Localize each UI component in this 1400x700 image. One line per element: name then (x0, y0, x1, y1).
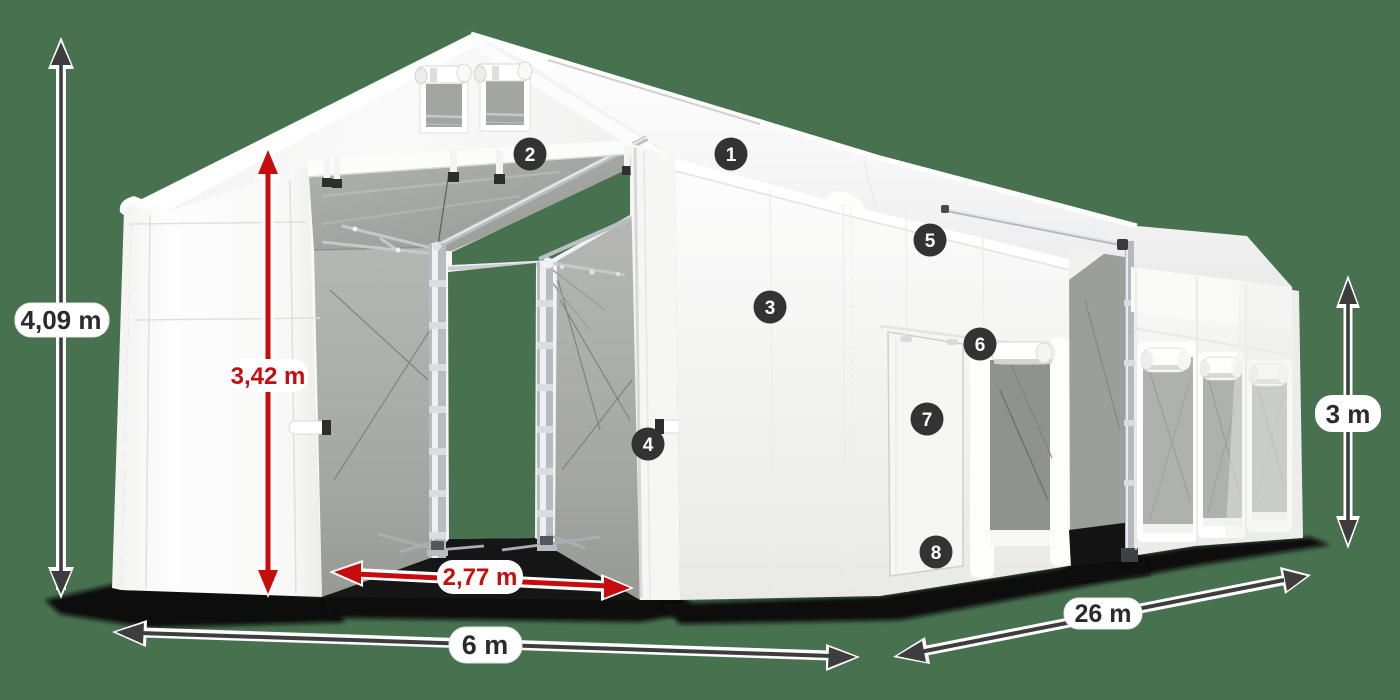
svg-text:26 m: 26 m (1075, 600, 1132, 628)
svg-text:5: 5 (925, 231, 936, 252)
svg-text:1: 1 (726, 145, 737, 166)
svg-text:4: 4 (643, 435, 654, 456)
svg-text:2: 2 (525, 145, 536, 166)
svg-text:3 m: 3 m (1326, 399, 1371, 429)
svg-text:3: 3 (765, 298, 776, 319)
svg-text:3,42 m: 3,42 m (231, 363, 306, 390)
svg-text:8: 8 (931, 543, 942, 564)
svg-text:2,77 m: 2,77 m (443, 564, 518, 591)
svg-text:7: 7 (922, 410, 933, 431)
svg-text:6 m: 6 m (462, 630, 509, 660)
svg-text:4,09 m: 4,09 m (21, 305, 102, 335)
svg-text:6: 6 (975, 335, 986, 356)
